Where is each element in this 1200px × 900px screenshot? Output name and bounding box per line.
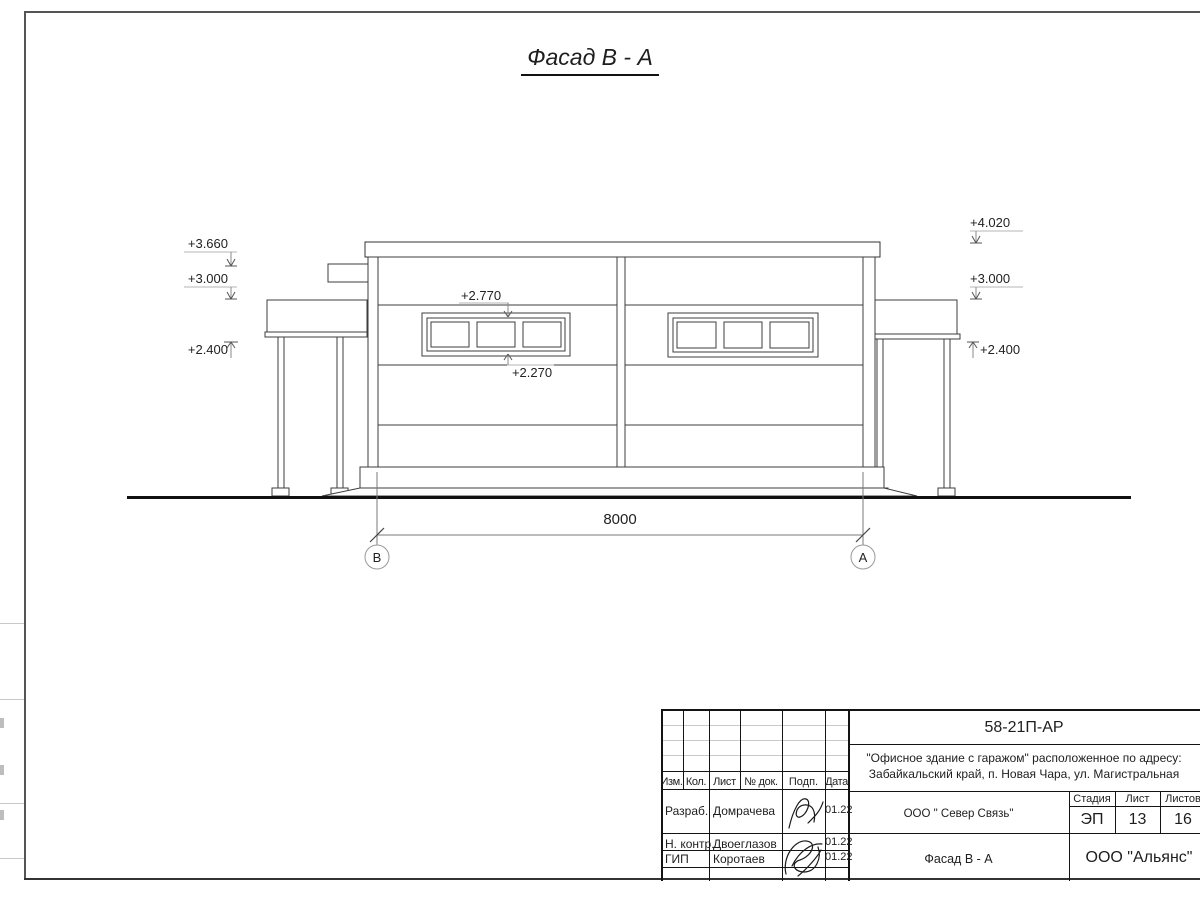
dimension-value: 8000 [603, 511, 636, 528]
elevation-mark-label: +3.660 [188, 236, 228, 251]
col-izm: Изм. [660, 776, 683, 788]
plinth [322, 467, 917, 496]
window-mark-top: +2.770 [461, 288, 501, 303]
signature-nkontr-gip [785, 841, 822, 876]
client-name: ООО " Север Связь" [848, 808, 1069, 820]
sheets-value: 16 [1160, 811, 1200, 829]
axis-label-A: А [859, 550, 868, 565]
col-ndok: № док. [740, 776, 782, 788]
col-data: Дата [825, 776, 848, 788]
elevation-mark-label: +4.020 [970, 215, 1010, 230]
drawing-name-cell: Фасад В - А [848, 852, 1069, 866]
row-name: Коротаев [713, 852, 765, 866]
right-window [668, 313, 818, 357]
row-role: ГИП [665, 852, 689, 866]
elevation-mark-label: +2.400 [980, 342, 1020, 357]
stage-label: Стадия [1069, 793, 1115, 805]
company-name: ООО "Альянс" [1069, 849, 1200, 867]
stage-value: ЭП [1069, 811, 1115, 829]
titleblock-line [662, 725, 848, 726]
signature-razrab [789, 799, 823, 828]
titleblock-line [661, 771, 848, 772]
row-role: Н. контр. [665, 837, 715, 851]
drawing-sheet: Фасад В - А [0, 0, 1200, 900]
window-mark-bottom: +2.270 [512, 365, 552, 380]
col-list: Лист [709, 776, 740, 788]
titleblock-line [661, 833, 1200, 834]
axis-bubbles: В А [365, 545, 875, 569]
titleblock-line [849, 744, 1200, 745]
parapet-coping [365, 242, 880, 257]
project-address-line2: Забайкальский край, п. Новая Чара, ул. М… [848, 767, 1200, 781]
elevation-marks-right: +4.020 +3.000 +2.400 [967, 215, 1023, 358]
signatures [778, 790, 838, 890]
col-kol: Кол. [683, 776, 709, 788]
row-role: Разраб. [665, 804, 708, 818]
titleblock-line [1069, 806, 1200, 807]
left-window [422, 313, 570, 356]
facade-drawing: +3.660 +3.000 +2.400 +4.020 +3.000 [0, 0, 1200, 900]
left-porch [265, 300, 367, 496]
titleblock-line [849, 791, 1200, 792]
titleblock-line [709, 709, 710, 881]
elevation-mark-label: +2.400 [188, 342, 228, 357]
row-name: Двоеглазов [713, 837, 777, 851]
row-name: Домрачева [713, 804, 775, 818]
titleblock-line [661, 709, 663, 881]
elevation-mark-label: +3.000 [188, 271, 228, 286]
elevation-mark-label: +3.000 [970, 271, 1010, 286]
titleblock-line [662, 740, 848, 741]
document-code: 58-21П-АР [848, 719, 1200, 737]
sheet-value: 13 [1115, 811, 1160, 829]
project-address-line1: "Офисное здание с гаражом" расположенное… [848, 751, 1200, 765]
titleblock-line [662, 755, 848, 756]
titleblock-line [661, 709, 1200, 711]
axis-label-B: В [373, 550, 382, 565]
main-wall [368, 257, 875, 467]
sheet-label: Лист [1115, 793, 1160, 805]
right-canopy [875, 300, 957, 334]
elevation-marks-left: +3.660 +3.000 +2.400 [184, 236, 238, 358]
roof-vent-box [328, 264, 368, 282]
col-podp: Подп. [782, 776, 825, 788]
left-canopy [267, 300, 367, 332]
sheets-label: Листов [1160, 793, 1200, 805]
